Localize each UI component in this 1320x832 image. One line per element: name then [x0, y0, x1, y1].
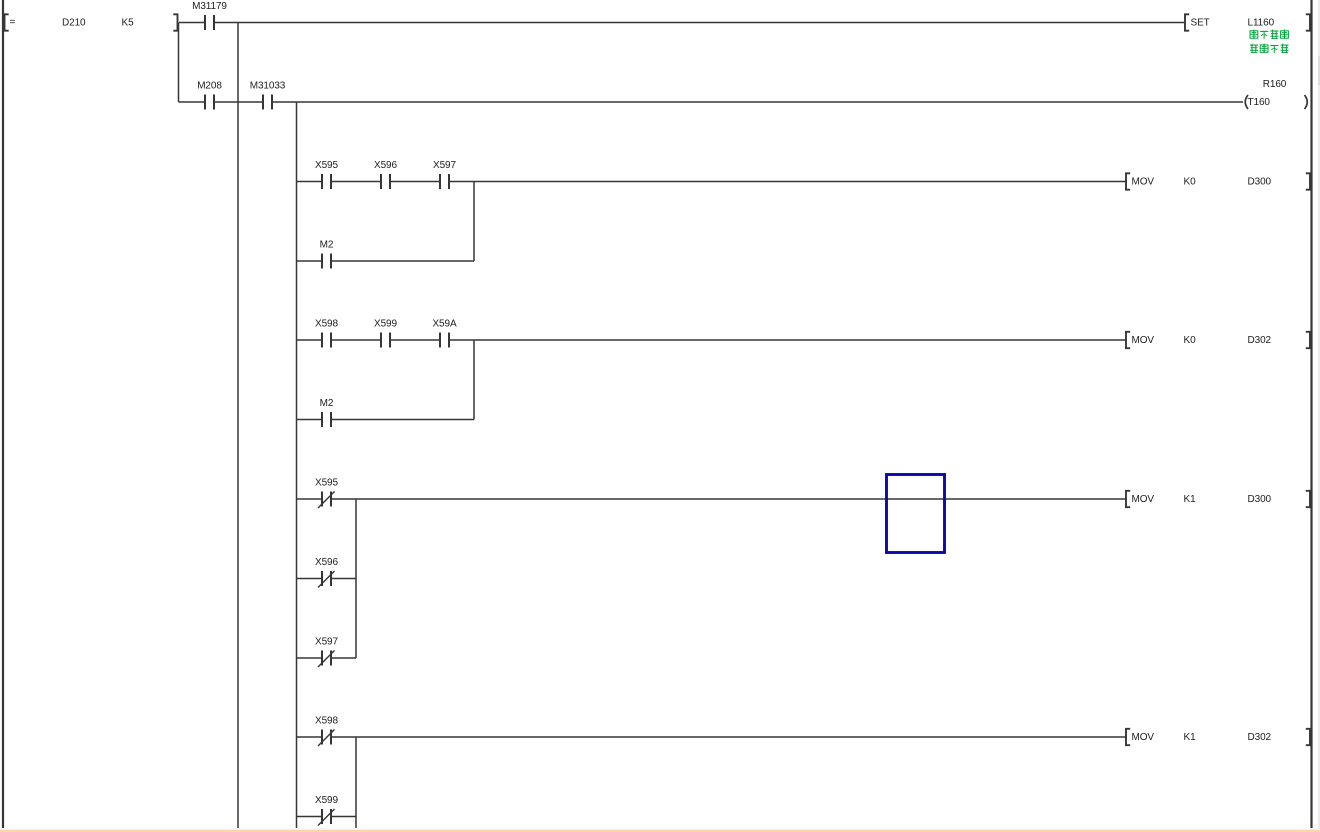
- svg-text:M31179: M31179: [192, 1, 227, 12]
- svg-text:D300: D300: [1248, 494, 1272, 505]
- svg-text:T160: T160: [1248, 97, 1271, 108]
- svg-text:=: =: [10, 17, 16, 28]
- svg-text:X598: X598: [315, 715, 338, 726]
- svg-text:SET: SET: [1191, 17, 1210, 28]
- svg-text:D302: D302: [1248, 732, 1272, 743]
- svg-text:D302: D302: [1248, 335, 1272, 346]
- svg-text:M2: M2: [320, 239, 334, 250]
- svg-text:X597: X597: [315, 636, 338, 647]
- svg-text:X595: X595: [315, 477, 338, 488]
- svg-text:X596: X596: [374, 160, 397, 171]
- svg-text:L1160: L1160: [1248, 17, 1275, 28]
- svg-text:D210: D210: [62, 17, 86, 28]
- svg-text:M2: M2: [320, 398, 334, 409]
- svg-text:MOV: MOV: [1132, 494, 1155, 505]
- svg-text:MOV: MOV: [1132, 335, 1155, 346]
- svg-text:X598: X598: [315, 318, 338, 329]
- svg-text:R160: R160: [1263, 79, 1287, 90]
- svg-text:K1: K1: [1184, 494, 1197, 505]
- svg-text:K0: K0: [1184, 335, 1197, 346]
- svg-text:M208: M208: [197, 80, 222, 91]
- svg-text:X597: X597: [433, 160, 456, 171]
- svg-text:K1: K1: [1184, 732, 1197, 743]
- svg-text:K0: K0: [1184, 176, 1197, 187]
- svg-text:M31033: M31033: [250, 80, 286, 91]
- svg-text:MOV: MOV: [1132, 732, 1155, 743]
- svg-text:X59A: X59A: [432, 318, 456, 329]
- svg-text:X595: X595: [315, 160, 338, 171]
- svg-text:X599: X599: [315, 795, 338, 806]
- svg-text:D300: D300: [1248, 176, 1272, 187]
- svg-text:X596: X596: [315, 557, 338, 568]
- svg-text:X599: X599: [374, 318, 397, 329]
- svg-text:K5: K5: [122, 17, 135, 28]
- svg-text:MOV: MOV: [1132, 176, 1155, 187]
